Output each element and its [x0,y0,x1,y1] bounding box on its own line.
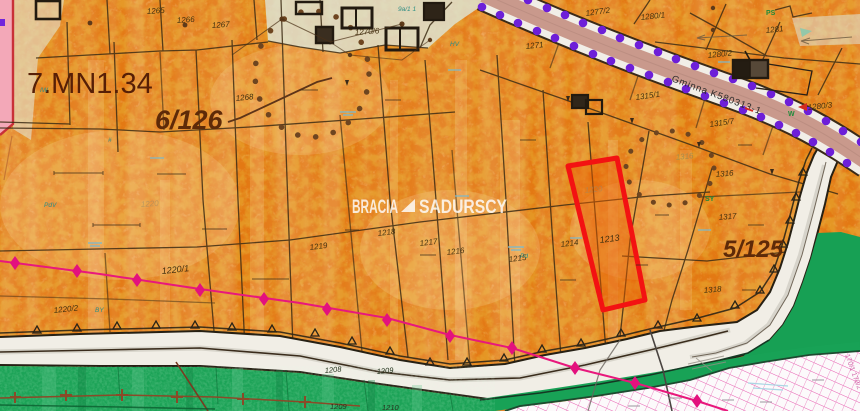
svg-text:BY: BY [95,307,104,314]
svg-text:1265: 1265 [147,6,166,16]
svg-text:1209: 1209 [376,366,394,376]
svg-text:1266: 1266 [177,15,196,25]
svg-text:SY: SY [705,196,715,203]
svg-text:PS: PS [766,10,776,17]
svg-text:9a/1 1: 9a/1 1 [398,6,416,13]
svg-text:6/126: 6/126 [155,105,224,135]
svg-text:1267: 1267 [212,20,231,30]
svg-text:#: # [108,137,112,144]
svg-text:1220: 1220 [141,199,160,209]
svg-text:1317: 1317 [718,211,737,222]
svg-text:1208: 1208 [324,365,342,375]
svg-text:1270/6: 1270/6 [355,26,381,37]
svg-text:1220: 1220 [584,184,603,195]
svg-text:W: W [788,111,795,118]
svg-text:IW: IW [40,87,49,94]
svg-text:1316: 1316 [675,151,694,162]
svg-text:PdV: PdV [44,202,57,209]
svg-text:1318: 1318 [703,284,722,295]
svg-text:1209: 1209 [330,402,348,411]
svg-text:1316: 1316 [715,168,734,179]
svg-text:1210: 1210 [382,403,400,411]
svg-text:1268: 1268 [235,92,254,103]
svg-text:5/125: 5/125 [723,236,784,263]
svg-text:1271: 1271 [525,40,544,51]
svg-text:BRACIA: BRACIA [352,197,398,218]
svg-text:1281: 1281 [765,24,784,35]
svg-text:Pd: Pd [520,253,528,260]
svg-text:7.MN1.34: 7.MN1.34 [27,68,153,100]
svg-text:SADURSCY: SADURSCY [419,197,507,218]
svg-text:HV: HV [450,41,460,48]
